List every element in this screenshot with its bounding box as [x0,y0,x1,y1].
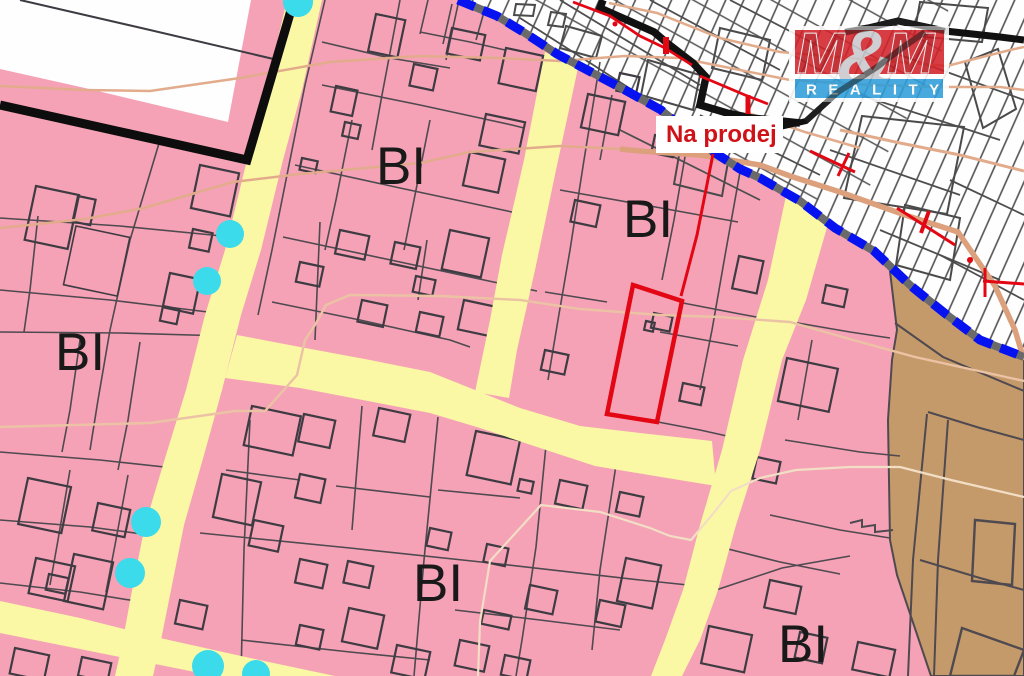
svg-text:BI: BI [778,615,828,674]
svg-text:BI: BI [55,323,105,382]
svg-text:REALITY: REALITY [806,82,951,99]
svg-text:BI: BI [623,190,673,249]
svg-text:BI: BI [413,554,463,613]
svg-text:Na prodej: Na prodej [666,121,777,148]
svg-text:BI: BI [376,137,426,196]
